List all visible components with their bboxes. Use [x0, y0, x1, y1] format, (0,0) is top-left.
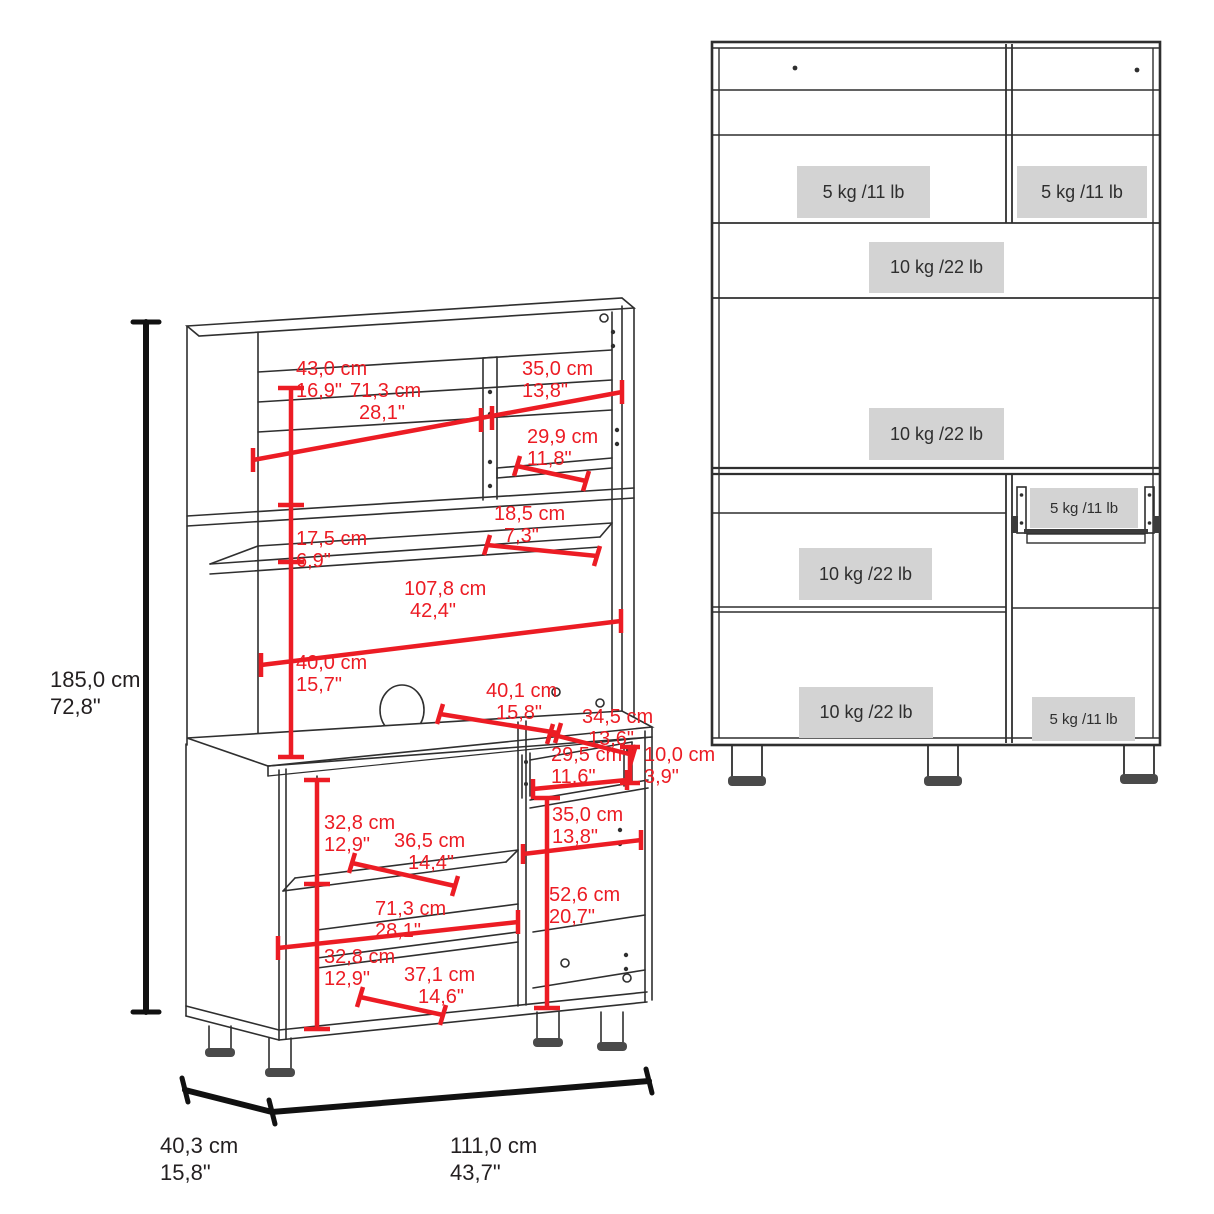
cabinet-legs-iso: [205, 1012, 627, 1077]
dim-countertop-depth: 40,1 cm 15,8": [486, 680, 557, 724]
dim-base-left-width: 71,3 cm 28,1": [375, 898, 446, 942]
dim-base-upper-height: 32,8 cm 12,9": [324, 812, 395, 856]
dim-hutch-interior-width: 107,8 cm 42,4": [404, 578, 486, 622]
dim-base-bottom-depth: 37,1 cm 14,6": [404, 964, 475, 1008]
capacity-hutch-middle-shelf: 10 kg /22 lb: [869, 242, 1004, 293]
dimension-diagram: 43,0 cm 16,9" 71,3 cm 28,1" 35,0 cm 13,8…: [0, 0, 1214, 1214]
dim-base-lower-height: 32,8 cm 12,9": [324, 946, 395, 990]
dim-base-right-height: 52,6 cm 20,7": [549, 884, 620, 928]
dim-hutch-middle-height: 17,5 cm 6,9": [296, 528, 367, 572]
cabinet-legs-front: [728, 745, 1158, 786]
capacity-hutch-left-shelf: 5 kg /11 lb: [797, 166, 930, 218]
red-dimension-lines: [253, 380, 641, 1029]
capacity-hutch-right-shelf: 5 kg /11 lb: [1017, 166, 1147, 218]
dim-hutch-right-width: 35,0 cm 13,8": [522, 358, 593, 402]
dim-hutch-middle-shelf-depth: 18,5 cm 7,3": [494, 503, 565, 547]
dim-drawer-height: 10,0 cm 3,9": [644, 744, 715, 788]
dim-drawer-inner-width: 29,5 cm 11,6": [551, 744, 622, 788]
overall-height-label: 185,0 cm 72,8": [50, 666, 141, 720]
dim-microwave-space-height: 40,0 cm 15,7": [296, 652, 367, 696]
capacity-base-left-bottom: 10 kg /22 lb: [799, 687, 933, 738]
dim-base-right-width: 35,0 cm 13,8": [552, 804, 623, 848]
overall-depth-label: 40,3 cm 15,8": [160, 1132, 238, 1186]
overall-width-label: 111,0 cm 43,7": [450, 1132, 537, 1186]
dim-base-shelf-depth: 36,5 cm 14,4": [394, 830, 465, 874]
dim-hutch-left-width: 71,3 cm 28,1": [350, 380, 421, 424]
dim-hutch-right-shelf-depth: 29,9 cm 11,8": [527, 426, 598, 470]
capacity-base-left-shelf: 10 kg /22 lb: [799, 548, 932, 600]
capacity-hutch-bottom-shelf: 10 kg /22 lb: [869, 408, 1004, 460]
capacity-base-right-bottom: 5 kg /11 lb: [1032, 697, 1135, 741]
capacity-drawer: 5 kg /11 lb: [1030, 488, 1138, 528]
